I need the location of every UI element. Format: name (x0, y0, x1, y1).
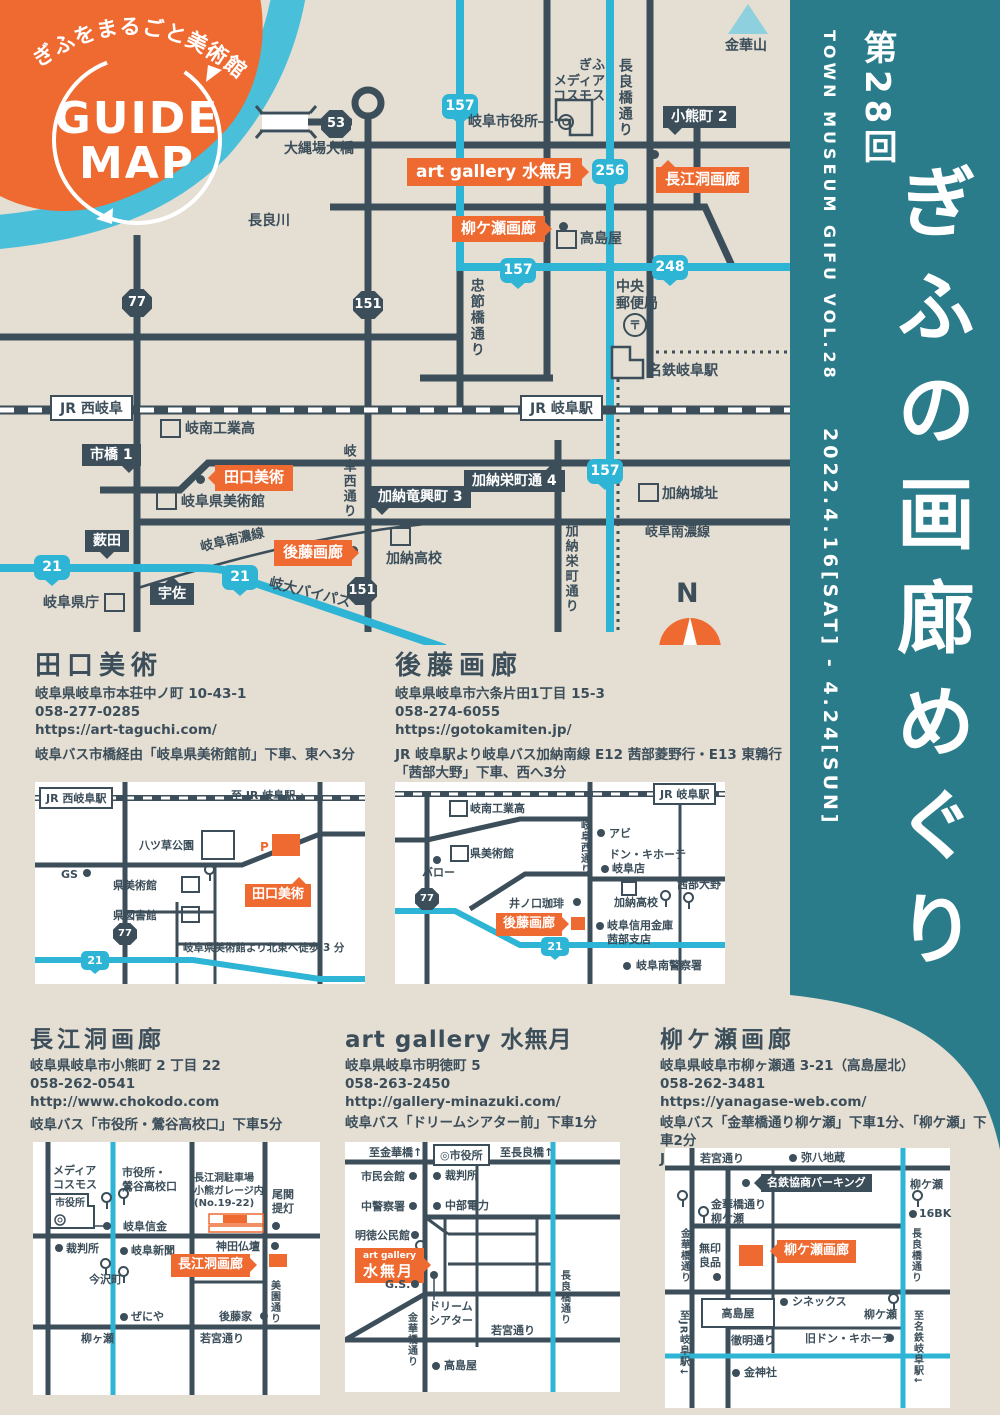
location-dot-icon (623, 962, 631, 970)
gotoke-label: 後藤家 (219, 1310, 252, 1324)
wakamiya-street-label: 若宮通り (200, 1332, 244, 1346)
yanagase-map-tag: 柳ケ瀬画廊 (452, 216, 545, 242)
location-dot-icon (732, 1369, 740, 1377)
taguchi-minimap: JR 西岐阜駅 至 JR 岐阜駅→ 八ツ草公園 GS 県美術館 県図書館 P 田… (35, 782, 365, 984)
route-shield-53: 53 (321, 110, 351, 138)
route-shield-21: 21 (81, 951, 109, 970)
to-kinkabashi-label: 至金華橋↑ (369, 1146, 422, 1160)
wakamiya-street-label: 若宮通り (700, 1152, 744, 1166)
sidebar-series-label: TOWN MUSEUM GIFU VOL.28 (820, 30, 839, 382)
building-square-icon (156, 491, 177, 510)
yanagase-minimap: 若宮通り 弥八地蔵 名鉄協商パーキング 柳ケ瀬 16BK 金華橋通り 柳ケ瀬 金… (665, 1148, 950, 1408)
taguchi-address: 岐阜県岐阜市本荘中ノ町 10-43-1 (35, 685, 246, 703)
wakamiya-street-label: 若宮通り (491, 1324, 535, 1338)
yahachi-label: 弥八地蔵 (801, 1151, 845, 1165)
location-dot-icon (120, 1247, 128, 1255)
abi-label: アビ (609, 827, 631, 841)
nagarabashi-street-label: 長良橋通り (616, 58, 633, 138)
bus-stop-icon (203, 864, 214, 881)
minazuki-url: http://gallery-minazuki.com/ (345, 1093, 561, 1111)
taguchi-url: https://art-taguchi.com/ (35, 721, 217, 739)
pref-museum-label: 岐阜県美術館 (181, 494, 265, 511)
yanagase-name: 柳ケ瀬画廊 (660, 1020, 795, 1054)
minazuki-map-tag: art gallery 水無月 (407, 158, 582, 186)
zeniya-label: ぜにや (131, 1310, 164, 1324)
tetsumei-street-label: 徹明通り (731, 1334, 775, 1348)
jr-nishi-gifu-box: JR 西岐阜駅 (39, 787, 113, 809)
location-dot-icon (573, 898, 581, 906)
yabuta-tag: 薮田 (85, 530, 129, 552)
police-label: 中警察署 (361, 1200, 405, 1214)
sidebar-title: ぎふの画廊めぐり (890, 162, 968, 992)
building-square-icon (181, 876, 200, 893)
route-shield-151: 151 (347, 577, 377, 605)
location-dot-icon (409, 1172, 417, 1180)
bus-stop-icon (676, 1190, 687, 1207)
imazawa-label: 今沢町 (89, 1273, 122, 1287)
taguchi-name: 田口美術 (35, 645, 163, 682)
yanagase-address: 岐阜県岐阜市柳ヶ瀬通 3-21（高島屋北） (660, 1057, 914, 1075)
gallery-building-icon (269, 1254, 287, 1267)
guide-title-line2: MAP (0, 142, 277, 185)
location-dot-icon (886, 1334, 894, 1342)
location-dot-icon (789, 1154, 797, 1162)
sidebar-edition: 第28回 (853, 30, 902, 169)
goto-tel: 058-274-6055 (395, 703, 500, 721)
press-label: 岐阜新聞 (131, 1244, 175, 1258)
to-jr-gifu-label: 至 JR 岐阜駅→ (231, 789, 304, 803)
chubu-label: 中部電力 (445, 1199, 489, 1213)
shinkin-label: 岐阜信金 (123, 1220, 167, 1234)
yanagase-minimap-tag: 柳ケ瀬画廊 (777, 1240, 856, 1263)
taguchi-minimap-tag: 田口美術 (245, 884, 311, 907)
location-dot-icon (83, 869, 91, 877)
route-shield-151: 151 (353, 291, 383, 319)
to-nagarabashi-label: 至長良橋↑ (500, 1146, 553, 1160)
location-dot-icon (909, 1210, 917, 1218)
chokodo-access: 岐阜バス「市役所・鶯谷高校口」下車5分 (30, 1116, 282, 1134)
goto-minimap-tag: 後藤画廊 (496, 913, 562, 936)
media-cosmos-label: メディア コスモス (53, 1164, 97, 1192)
kinkazan-label: 金華山 (725, 38, 767, 55)
river-label: 長良川 (248, 213, 290, 230)
kano-castle-label: 加納城址 (662, 486, 718, 503)
oguma2-tag: 小熊町 2 (663, 106, 736, 128)
route-shield-21: 21 (34, 555, 70, 580)
pref-museum-label: 県美術館 (113, 879, 157, 893)
ginan-tech-label: 岐南工業高 (185, 421, 255, 438)
misono-street-label: 美園通り (267, 1280, 280, 1324)
taguchi-tel: 058-277-0285 (35, 703, 140, 721)
chokodo-url: http://www.chokodo.com (30, 1093, 219, 1111)
donki-branch-label: 岐阜店 (612, 862, 645, 876)
pref-museum-label: 県美術館 (470, 847, 514, 861)
building-square-icon (181, 906, 200, 923)
building-square-icon (160, 419, 181, 438)
yanagase-tel: 058-262-3481 (660, 1075, 765, 1093)
cityhall-label: 市役所 (55, 1198, 85, 1211)
location-dot-icon (271, 1242, 279, 1250)
chokodo-name: 長江洞画廊 (30, 1020, 165, 1054)
bus-stop-icon (911, 1190, 922, 1207)
chusetsubashi-street-label: 忠節橋通り (468, 278, 485, 358)
kanda-label: 神田仏壇 (216, 1240, 260, 1254)
minazuki-minimap: 至金華橋↑ ◎市役所 至長良橋↑ 市民会館 裁判所 中警察署 中部電力 明徳公民… (345, 1142, 620, 1392)
konjinja-label: 金神社 (744, 1366, 777, 1380)
goto-url: https://gotokamiten.jp/ (395, 721, 572, 739)
ichihashi1-tag: 市橋 1 (82, 444, 141, 466)
location-dot-icon (780, 1298, 788, 1306)
kano-ryuko3-tag: 加納竜興町 3 (370, 486, 471, 508)
bk16-label: 16BK (919, 1207, 951, 1221)
building-square-icon (450, 845, 469, 862)
location-dot-icon (559, 222, 568, 231)
court-label: 裁判所 (66, 1242, 99, 1256)
nagarabashi-street-label: 長良橋通り (557, 1270, 570, 1325)
location-dot-icon (411, 1231, 419, 1239)
goto-minimap: JR 岐阜駅 岐南工業高 岐阜西通り アビ ドン・キホーテ 岐阜店 県美術館 バ… (395, 782, 725, 984)
valor-label: バロー (422, 866, 455, 880)
route-shield-77: 77 (415, 888, 439, 910)
chokodo-map-tag: 長江洞画廊 (656, 167, 749, 193)
chokodo-minimap: メディア コスモス 市役所 市役所・ 鶯谷高校口 長江洞駐車場 小熊ガレージ内 … (33, 1142, 320, 1395)
yanagase-bus2-label: 柳ケ瀬 (864, 1308, 897, 1322)
jr-gifu-station: JR 岐阜駅 (520, 395, 603, 421)
chokodo-tel: 058-262-0541 (30, 1075, 135, 1093)
to-meitetsu-label: 至名鉄岐阜駅↓ (910, 1310, 923, 1385)
takashimaya-box: 高島屋 (701, 1298, 775, 1328)
goto-address: 岐阜県岐阜市六条片田1丁目 15-3 (395, 685, 605, 703)
bus-stop-name-label: 市役所・ 鶯谷高校口 (122, 1166, 177, 1194)
location-dot-icon (601, 865, 609, 873)
route-shield-248: 248 (652, 255, 688, 280)
shimin-label: 市民会館 (361, 1170, 405, 1184)
kano-hs-label: 加納高校 (386, 551, 442, 568)
location-dot-icon (272, 1222, 280, 1230)
chokodo-minimap-tag: 長江洞画廊 (171, 1254, 250, 1277)
media-cosmos-label: ぎふ メディア コスモス (545, 58, 605, 105)
location-dot-icon (650, 150, 659, 159)
location-dot-icon (409, 1202, 417, 1210)
location-dot-icon (120, 1313, 128, 1321)
muji-label: 無印 良品 (699, 1242, 721, 1270)
location-dot-icon (596, 922, 604, 930)
akabe-ono-label: 茜部大野 (677, 878, 721, 892)
chokodo-parking-label: 長江洞駐車場 小熊ガレージ内 (No.19-22) (194, 1173, 264, 1211)
to-jr-gifu-label: 至JR岐阜駅↓ (676, 1310, 689, 1377)
route-shield-157: 157 (500, 258, 536, 283)
city-hall-label: 岐阜市役所 (468, 114, 538, 131)
location-dot-icon (55, 1244, 63, 1252)
ginan-label: 岐南工業高 (470, 802, 525, 816)
takashimaya-label: 高島屋 (580, 231, 622, 248)
gifu-nishi-street-label: 岐阜西通り (577, 820, 590, 875)
location-dot-icon (411, 1280, 419, 1288)
kinkabashi-street-label: 金華橋通り (677, 1228, 690, 1283)
usa-tag: 宇佐 (150, 583, 194, 605)
route-shield-21: 21 (222, 565, 258, 590)
building-square-icon (638, 483, 659, 502)
central-post-label: 中央 郵便局 (616, 279, 658, 313)
yanagase-url: https://yanagase-web.com/ (660, 1093, 866, 1111)
meitetsu-station-label: 名鉄岐阜駅 (648, 363, 718, 380)
park-label: 八ツ草公園 (139, 839, 194, 853)
location-dot-icon (430, 1271, 438, 1279)
minazuki-address: 岐阜県岐阜市明徳町 5 (345, 1057, 481, 1075)
bus-stop-icon (659, 890, 670, 907)
location-dot-icon (597, 829, 605, 837)
gallery-building-icon (571, 917, 585, 930)
court-label: 裁判所 (445, 1169, 478, 1183)
kinkabashi-street-label: 金華橋通り (404, 1312, 417, 1367)
walk-note-label: 岐阜県美術館より北東へ徒歩 3 分 (183, 942, 344, 955)
meitoku-label: 明徳公民館 (355, 1229, 410, 1243)
location-dot-icon (103, 1222, 111, 1230)
goto-map-tag: 後藤画廊 (274, 540, 352, 566)
pref-library-label: 県図書館 (113, 909, 157, 923)
building-square-icon (621, 881, 637, 896)
taguchi-map-tag: 田口美術 (215, 465, 293, 491)
bus-stop-icon (100, 1192, 111, 1209)
yanagase-label: 柳ヶ瀬 (81, 1332, 114, 1346)
gs-label: G.S. (385, 1278, 410, 1292)
cinex-label: シネックス (792, 1295, 847, 1309)
location-dot-icon (432, 1362, 440, 1370)
route-shield-157: 157 (587, 459, 623, 484)
building-square-icon (556, 230, 577, 249)
gallery-building-icon (272, 834, 300, 856)
minazuki-tag-line1: art gallery (363, 1251, 416, 1262)
route-shield-77: 77 (122, 289, 152, 317)
route-shield-77: 77 (113, 923, 137, 945)
inokuchi-label: 井ノ口珈琲 (509, 897, 564, 911)
dream-theater-label: ドリーム シアター (429, 1300, 473, 1328)
kano-sakaemachi-street-label: 加納栄町通り (562, 524, 578, 614)
gs-label: GS (61, 868, 78, 882)
shinkin-label: 岐阜信用金庫 茜部支店 (607, 919, 673, 947)
old-donki-label: 旧ドン・キホーテ (805, 1332, 893, 1346)
nagarabashi-street-label: 長良橋通り (908, 1228, 921, 1283)
jr-gifu-box: JR 岐阜駅 (653, 783, 716, 805)
mountain-icon (728, 4, 768, 34)
postal-mark-icon: 〒 (623, 313, 647, 337)
minazuki-tel: 058-263-2450 (345, 1075, 450, 1093)
guide-map-poster: ぎふをまるごと美術館に (0, 0, 1000, 1415)
building-square-icon (104, 593, 125, 612)
nannosen-label-east: 岐阜南濃線 (645, 525, 710, 541)
goto-name: 後藤画廊 (395, 645, 523, 682)
pref-office-label: 岐阜県庁 (43, 595, 99, 612)
ozeki-label: 尾関 提灯 (272, 1188, 294, 1216)
bridge-label: 大縄場大橋 (284, 141, 354, 158)
kano-sakae4-tag: 加納栄町通 4 (464, 470, 565, 492)
police-label: 岐阜南警察署 (636, 959, 702, 973)
route-shield-256: 256 (592, 159, 628, 184)
parking-p-label: P (260, 840, 269, 855)
minazuki-access: 岐阜バス「ドリームシアター前」下車1分 (345, 1114, 597, 1132)
kano-hs-label: 加納高校 (614, 896, 658, 910)
park-square-icon (201, 830, 235, 860)
location-dot-icon (433, 1172, 441, 1180)
meitetsu-parking-tag: 名鉄協商パーキング (761, 1174, 872, 1192)
compass-n-label: N (676, 578, 699, 610)
takashimaya-label: 高島屋 (444, 1359, 477, 1373)
location-dot-icon (433, 1202, 441, 1210)
main-map: ぎふをまるごと美術館に (0, 0, 790, 645)
chokodo-address: 岐阜県岐阜市小熊町 2 丁目 22 (30, 1057, 221, 1075)
location-dot-icon (742, 1179, 750, 1187)
location-dot-icon (713, 1273, 721, 1281)
jr-nishi-gifu-station: JR 西岐阜 (50, 395, 133, 421)
goto-access: JR 岐阜駅より岐阜バス加納南線 E12 茜部菱野行・E13 東鶉行 「茜部大野… (395, 746, 782, 782)
guide-title-line1: GUIDE (0, 97, 277, 140)
gallery-building-icon (739, 1245, 763, 1266)
gifu-nishi-street-label: 岐阜西通り (340, 444, 356, 519)
cityhall-box: ◎市役所 (433, 1144, 490, 1166)
sidebar-dates: 2022.4.16[SAT] - 4.24[SUN] (819, 428, 841, 827)
donki-label: ドン・キホーテ (609, 848, 686, 862)
taguchi-access: 岐阜バス市橋経由「岐阜県美術館前」下車、東へ3分 (35, 746, 355, 764)
building-square-icon (390, 527, 411, 546)
kinkabashi-bus-label: 金華橋通り 柳ケ瀬 (711, 1198, 766, 1226)
building-square-icon (449, 800, 468, 817)
bus-stop-icon (682, 892, 693, 909)
route-shield-21: 21 (541, 937, 569, 956)
location-dot-icon (433, 856, 441, 864)
location-dot-icon (260, 1312, 268, 1320)
location-dot-icon (196, 475, 205, 484)
minazuki-name: art gallery 水無月 (345, 1020, 573, 1054)
bus-stop-icon (697, 1206, 708, 1223)
